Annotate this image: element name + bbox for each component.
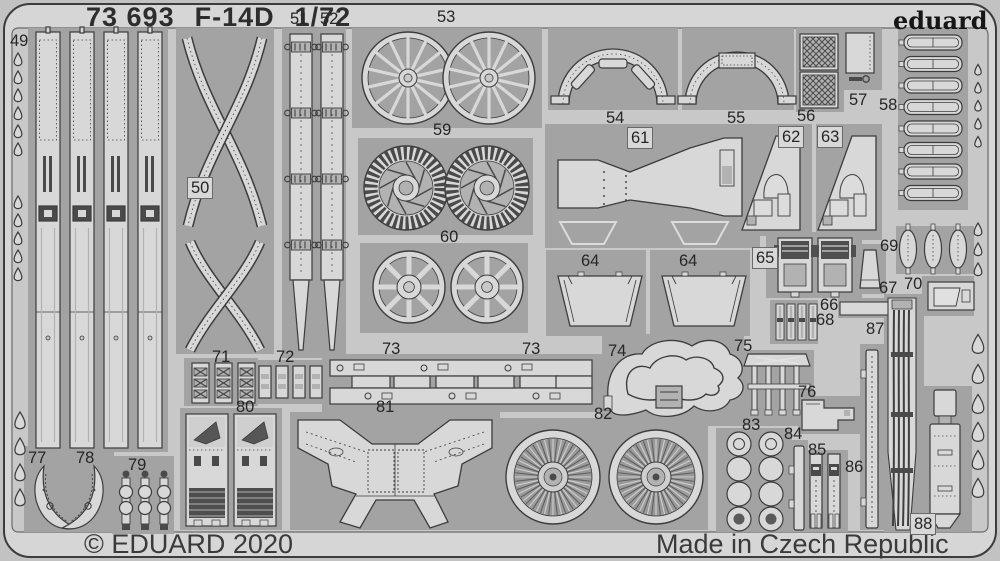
part-number-label: 60 (440, 229, 458, 246)
part-number-label: 53 (437, 9, 455, 26)
part-number-label: 52 (320, 11, 338, 28)
part-number-label: 88 (910, 513, 936, 535)
figure-buckles (192, 363, 255, 403)
part-number-label: 64 (581, 253, 599, 270)
copyright-text: © EDUARD 2020 (84, 529, 293, 560)
part-number-label: 55 (727, 110, 745, 127)
figure-pods (900, 224, 967, 274)
part-number-label: 68 (816, 312, 834, 329)
part-number-label: 64 (679, 253, 697, 270)
part-number-label: 81 (376, 399, 394, 416)
part-number-label: 83 (742, 417, 760, 434)
part-number-label: 85 (808, 442, 826, 459)
part-number-label: 73 (382, 341, 400, 358)
part-number-label: 69 (880, 238, 898, 255)
origin-text: Made in Czech Republic (656, 529, 949, 560)
part-number-label: 77 (28, 450, 46, 467)
figure-trap64 (662, 272, 746, 326)
part-number-label: 62 (778, 126, 804, 148)
part-number-label: 54 (606, 110, 624, 127)
figure-trap64 (558, 272, 642, 326)
part-number-label: 58 (879, 97, 897, 114)
photoetch-sheet-photo: 73 693 F-14D 1/72 eduard © EDUARD 2020 M… (0, 0, 1000, 561)
part-number-label: 61 (627, 127, 653, 149)
figure-rect70 (928, 282, 974, 310)
part-number-label: 65 (752, 247, 778, 269)
part-number-label: 76 (798, 384, 816, 401)
part-number-label: 74 (608, 343, 626, 360)
part-number-label: 63 (817, 126, 843, 148)
part-number-label: 82 (594, 406, 612, 423)
part-number-label: 79 (128, 457, 146, 474)
part-number-label: 75 (734, 338, 752, 355)
part-number-label: 73 (522, 341, 540, 358)
catalog-number: 73 693 (86, 2, 175, 33)
pe-parts-drawing (0, 0, 1000, 561)
figure-notchstrips (330, 360, 592, 404)
part-number-label: 50 (187, 177, 213, 199)
part-number-label: 56 (797, 108, 815, 125)
part-number-label: 49 (10, 33, 28, 50)
part-number-label: 57 (849, 92, 867, 109)
part-number-label: 59 (433, 122, 451, 139)
part-number-label: 84 (784, 426, 802, 443)
part-number-label: 87 (866, 321, 884, 338)
figure-cone (860, 250, 880, 288)
part-number-label: 72 (276, 349, 294, 366)
kit-name: F-14D (195, 2, 275, 33)
part-number-label: 70 (904, 276, 922, 293)
part-number-label: 86 (845, 459, 863, 476)
part-number-label: 78 (76, 450, 94, 467)
part-number-label: 51 (290, 11, 308, 28)
part-number-label: 67 (879, 280, 897, 297)
figure-circstrips (120, 471, 171, 531)
part-number-label: 71 (212, 349, 230, 366)
eduard-logo: eduard (893, 6, 987, 35)
part-number-label: 80 (236, 399, 254, 416)
figure-probe (930, 390, 960, 528)
